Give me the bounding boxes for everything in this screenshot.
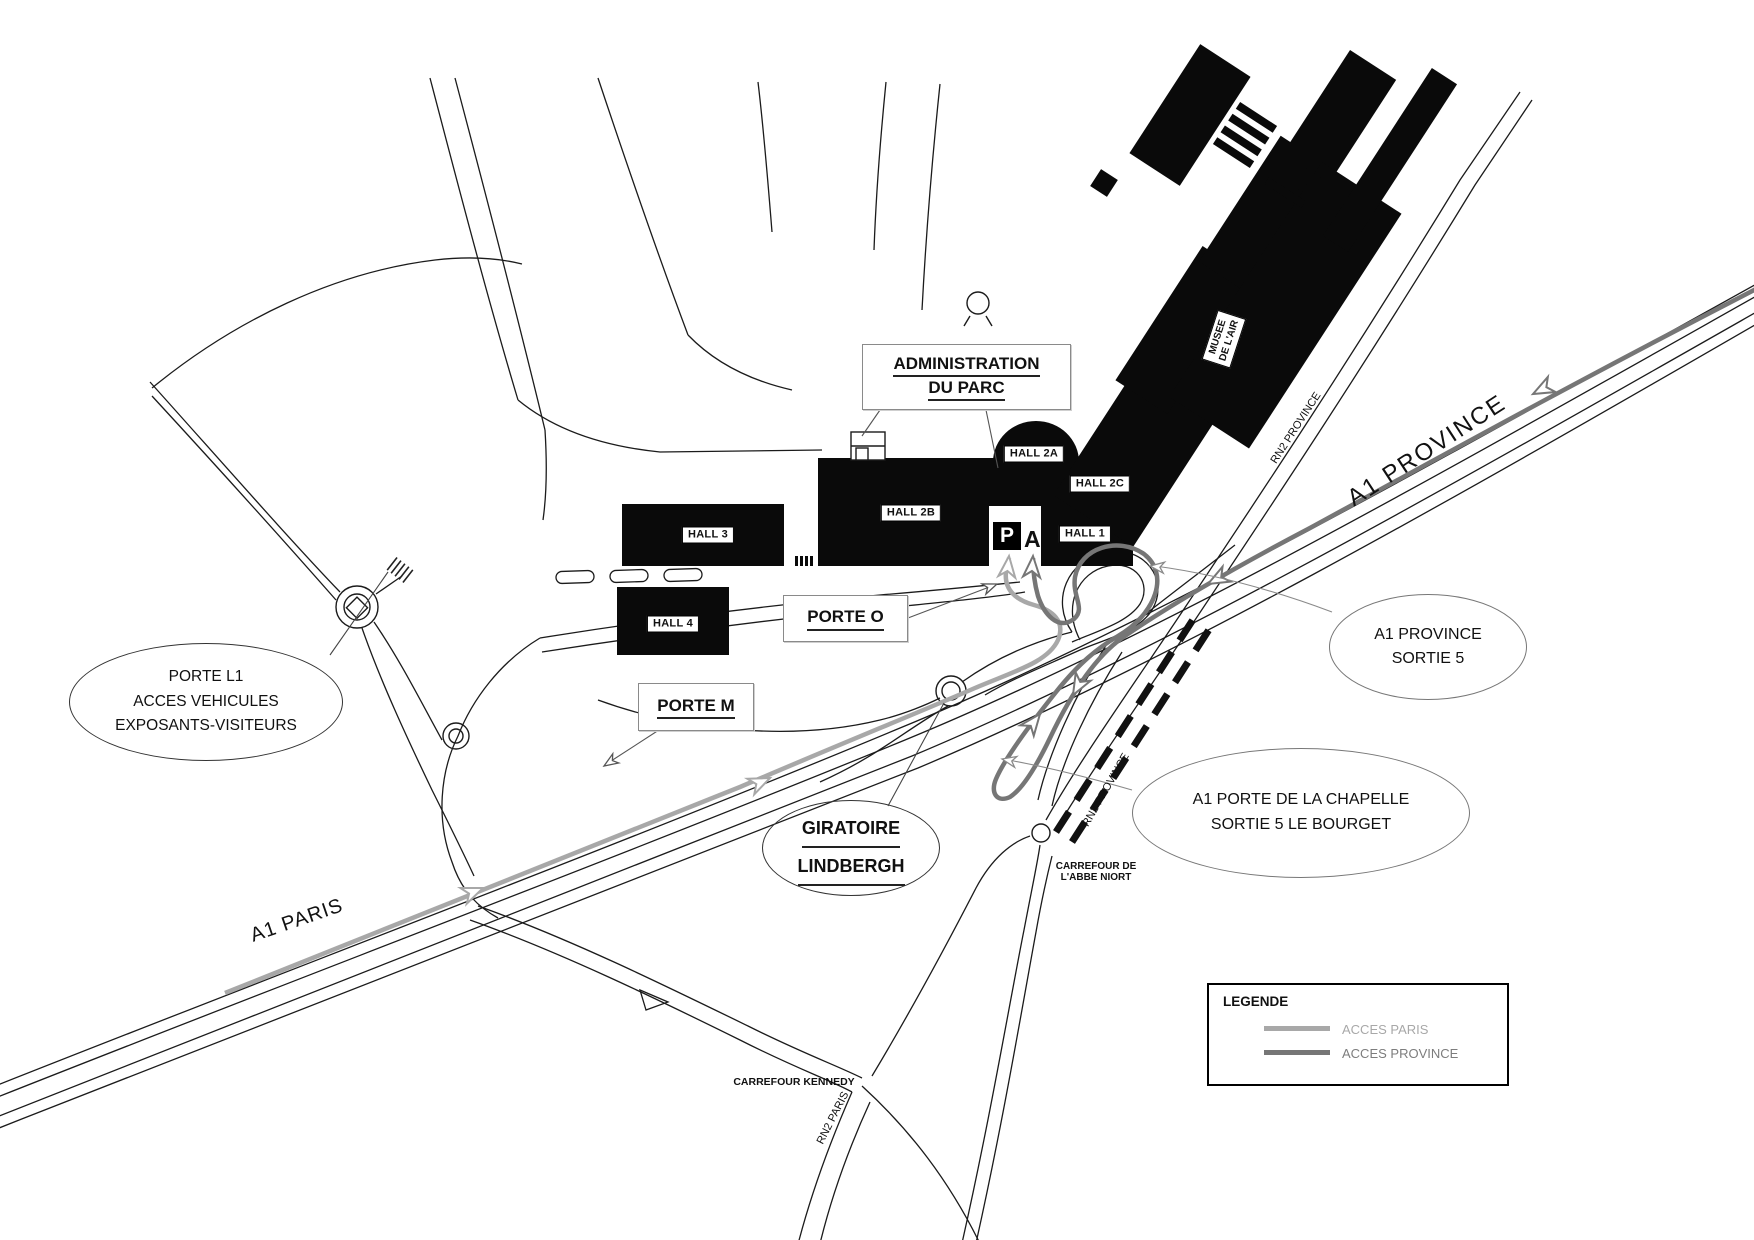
giratoire-line1: GIRATOIRE (802, 810, 900, 848)
porte-o-text: PORTE O (807, 606, 884, 630)
acces-province-label: ACCES PROVINCE (1342, 1046, 1458, 1061)
porte-l1-line2: ACCES VEHICULES (133, 690, 279, 715)
callout-a1-porte-chapelle: A1 PORTE DE LA CHAPELLE SORTIE 5 LE BOUR… (1132, 748, 1470, 878)
porte-l1-line3: EXPOSANTS-VISITEURS (115, 714, 297, 739)
administration-label-box: ADMINISTRATION DU PARC (862, 344, 1071, 410)
parking-p-icon: P (993, 522, 1021, 550)
porte-l1-line1: PORTE L1 (169, 665, 244, 690)
parking-zone-a: A (1024, 526, 1041, 553)
giratoire-line2: LINDBERGH (798, 848, 905, 886)
administration-line1: ADMINISTRATION (893, 353, 1039, 377)
legend-box: LEGENDE ACCES PARIS ACCES PROVINCE (1207, 983, 1509, 1086)
chapelle-line2: SORTIE 5 LE BOURGET (1211, 813, 1391, 838)
hall-1-label: HALL 1 (1059, 526, 1111, 543)
carrefour-kennedy-label: CARREFOUR KENNEDY (733, 1076, 854, 1088)
hall-4-label: HALL 4 (647, 616, 699, 633)
sortie5-line2: SORTIE 5 (1392, 647, 1465, 671)
niort-line1: CARREFOUR DE (1056, 861, 1137, 872)
legend-title: LEGENDE (1223, 994, 1288, 1009)
porte-m-label-box: PORTE M (638, 683, 754, 731)
callout-porte-l1: PORTE L1 ACCES VEHICULES EXPOSANTS-VISIT… (69, 643, 343, 761)
acces-province-line-swatch (1264, 1050, 1330, 1055)
callout-a1-province-sortie5: A1 PROVINCE SORTIE 5 (1329, 594, 1527, 700)
legend-item-acces-province: ACCES PROVINCE (1209, 1046, 1507, 1060)
callout-giratoire-lindbergh: GIRATOIRE LINDBERGH (762, 800, 940, 896)
hall-2b-label: HALL 2B (881, 505, 941, 522)
sortie5-line1: A1 PROVINCE (1374, 623, 1482, 647)
legend-item-acces-paris: ACCES PARIS (1209, 1022, 1507, 1036)
hall-3-label: HALL 3 (682, 527, 734, 544)
carrefour-abbe-niort-label: CARREFOUR DE L'ABBE NIORT (1056, 861, 1137, 883)
hall-2a-label: HALL 2A (1004, 446, 1064, 463)
acces-paris-line-swatch (1264, 1026, 1330, 1031)
porte-m-text: PORTE M (657, 695, 734, 719)
niort-line2: L'ABBE NIORT (1056, 872, 1137, 883)
hall-entrance-comb (795, 556, 813, 566)
esplanade-parking-strips (556, 568, 702, 583)
hall-2c-label: HALL 2C (1070, 476, 1130, 493)
administration-line2: DU PARC (928, 377, 1004, 401)
porte-l1-gate-hatch (387, 558, 413, 583)
administration-building-outline (851, 432, 885, 460)
porte-o-label-box: PORTE O (783, 595, 908, 642)
access-plan-map: ADMINISTRATION DU PARC PORTE O PORTE M H… (0, 0, 1754, 1240)
chapelle-line1: A1 PORTE DE LA CHAPELLE (1193, 788, 1410, 813)
acces-paris-label: ACCES PARIS (1342, 1022, 1428, 1037)
